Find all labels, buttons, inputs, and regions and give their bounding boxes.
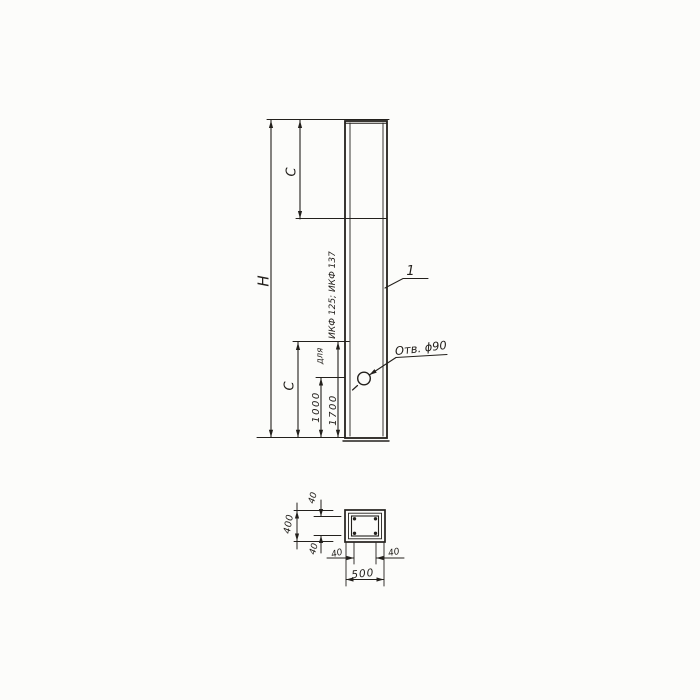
dim-h-label: H bbox=[255, 275, 273, 286]
drawing-sheet: H C C 1000 1700 для ИКФ 125; ИКФ 137 Отв… bbox=[0, 0, 700, 700]
dim-c-top-label: C bbox=[285, 167, 300, 177]
dim-c-bottom-label: C bbox=[283, 381, 298, 391]
rebar-dot bbox=[353, 532, 356, 535]
column-drawing: H C C 1000 1700 для ИКФ 125; ИКФ 137 Отв… bbox=[0, 0, 700, 700]
dim-arrow bbox=[269, 121, 273, 129]
rebar-dot bbox=[374, 517, 377, 520]
elevation-view: H C C 1000 1700 для ИКФ 125; ИКФ 137 Отв… bbox=[255, 120, 448, 442]
dim-arrow bbox=[347, 556, 355, 560]
dim-arrow bbox=[296, 430, 300, 438]
dim-arrow bbox=[377, 577, 385, 581]
hole-tick bbox=[353, 386, 358, 391]
dim-1700-label: 1700 bbox=[328, 394, 339, 425]
rebar-dot bbox=[353, 517, 356, 520]
column-outline bbox=[345, 121, 387, 438]
dim-arrow bbox=[319, 430, 323, 438]
section-view: 40 400 40 40 40 500 bbox=[282, 491, 404, 586]
section-dim-400-label: 400 bbox=[282, 513, 296, 534]
dim-arrow bbox=[269, 430, 273, 438]
section-dim-500-label: 500 bbox=[351, 567, 375, 581]
dim-arrow bbox=[295, 534, 299, 542]
hole-circle bbox=[358, 372, 371, 385]
note-prefix-label: для bbox=[316, 348, 326, 365]
note-series-label: ИКФ 125; ИКФ 137 bbox=[328, 251, 338, 339]
dim-arrow bbox=[336, 430, 340, 438]
dim-arrow bbox=[298, 211, 302, 219]
dim-arrow bbox=[319, 536, 323, 544]
section-dim-40-bottom-label: 40 bbox=[308, 542, 321, 556]
dim-arrow bbox=[319, 378, 323, 386]
dim-1000-label: 1000 bbox=[311, 391, 322, 422]
dim-arrow bbox=[298, 121, 302, 129]
dim-arrow bbox=[319, 509, 323, 517]
dim-arrow bbox=[376, 556, 384, 560]
section-dim-40-top-label: 40 bbox=[307, 491, 320, 505]
section-dim-40-right-label: 40 bbox=[387, 547, 401, 559]
section-inner-outline bbox=[349, 513, 382, 539]
item-leader-line bbox=[385, 279, 428, 289]
dim-arrow bbox=[296, 343, 300, 351]
item-mark-label: 1 bbox=[406, 264, 414, 279]
rebar-dot bbox=[374, 532, 377, 535]
dim-arrow bbox=[336, 342, 340, 350]
